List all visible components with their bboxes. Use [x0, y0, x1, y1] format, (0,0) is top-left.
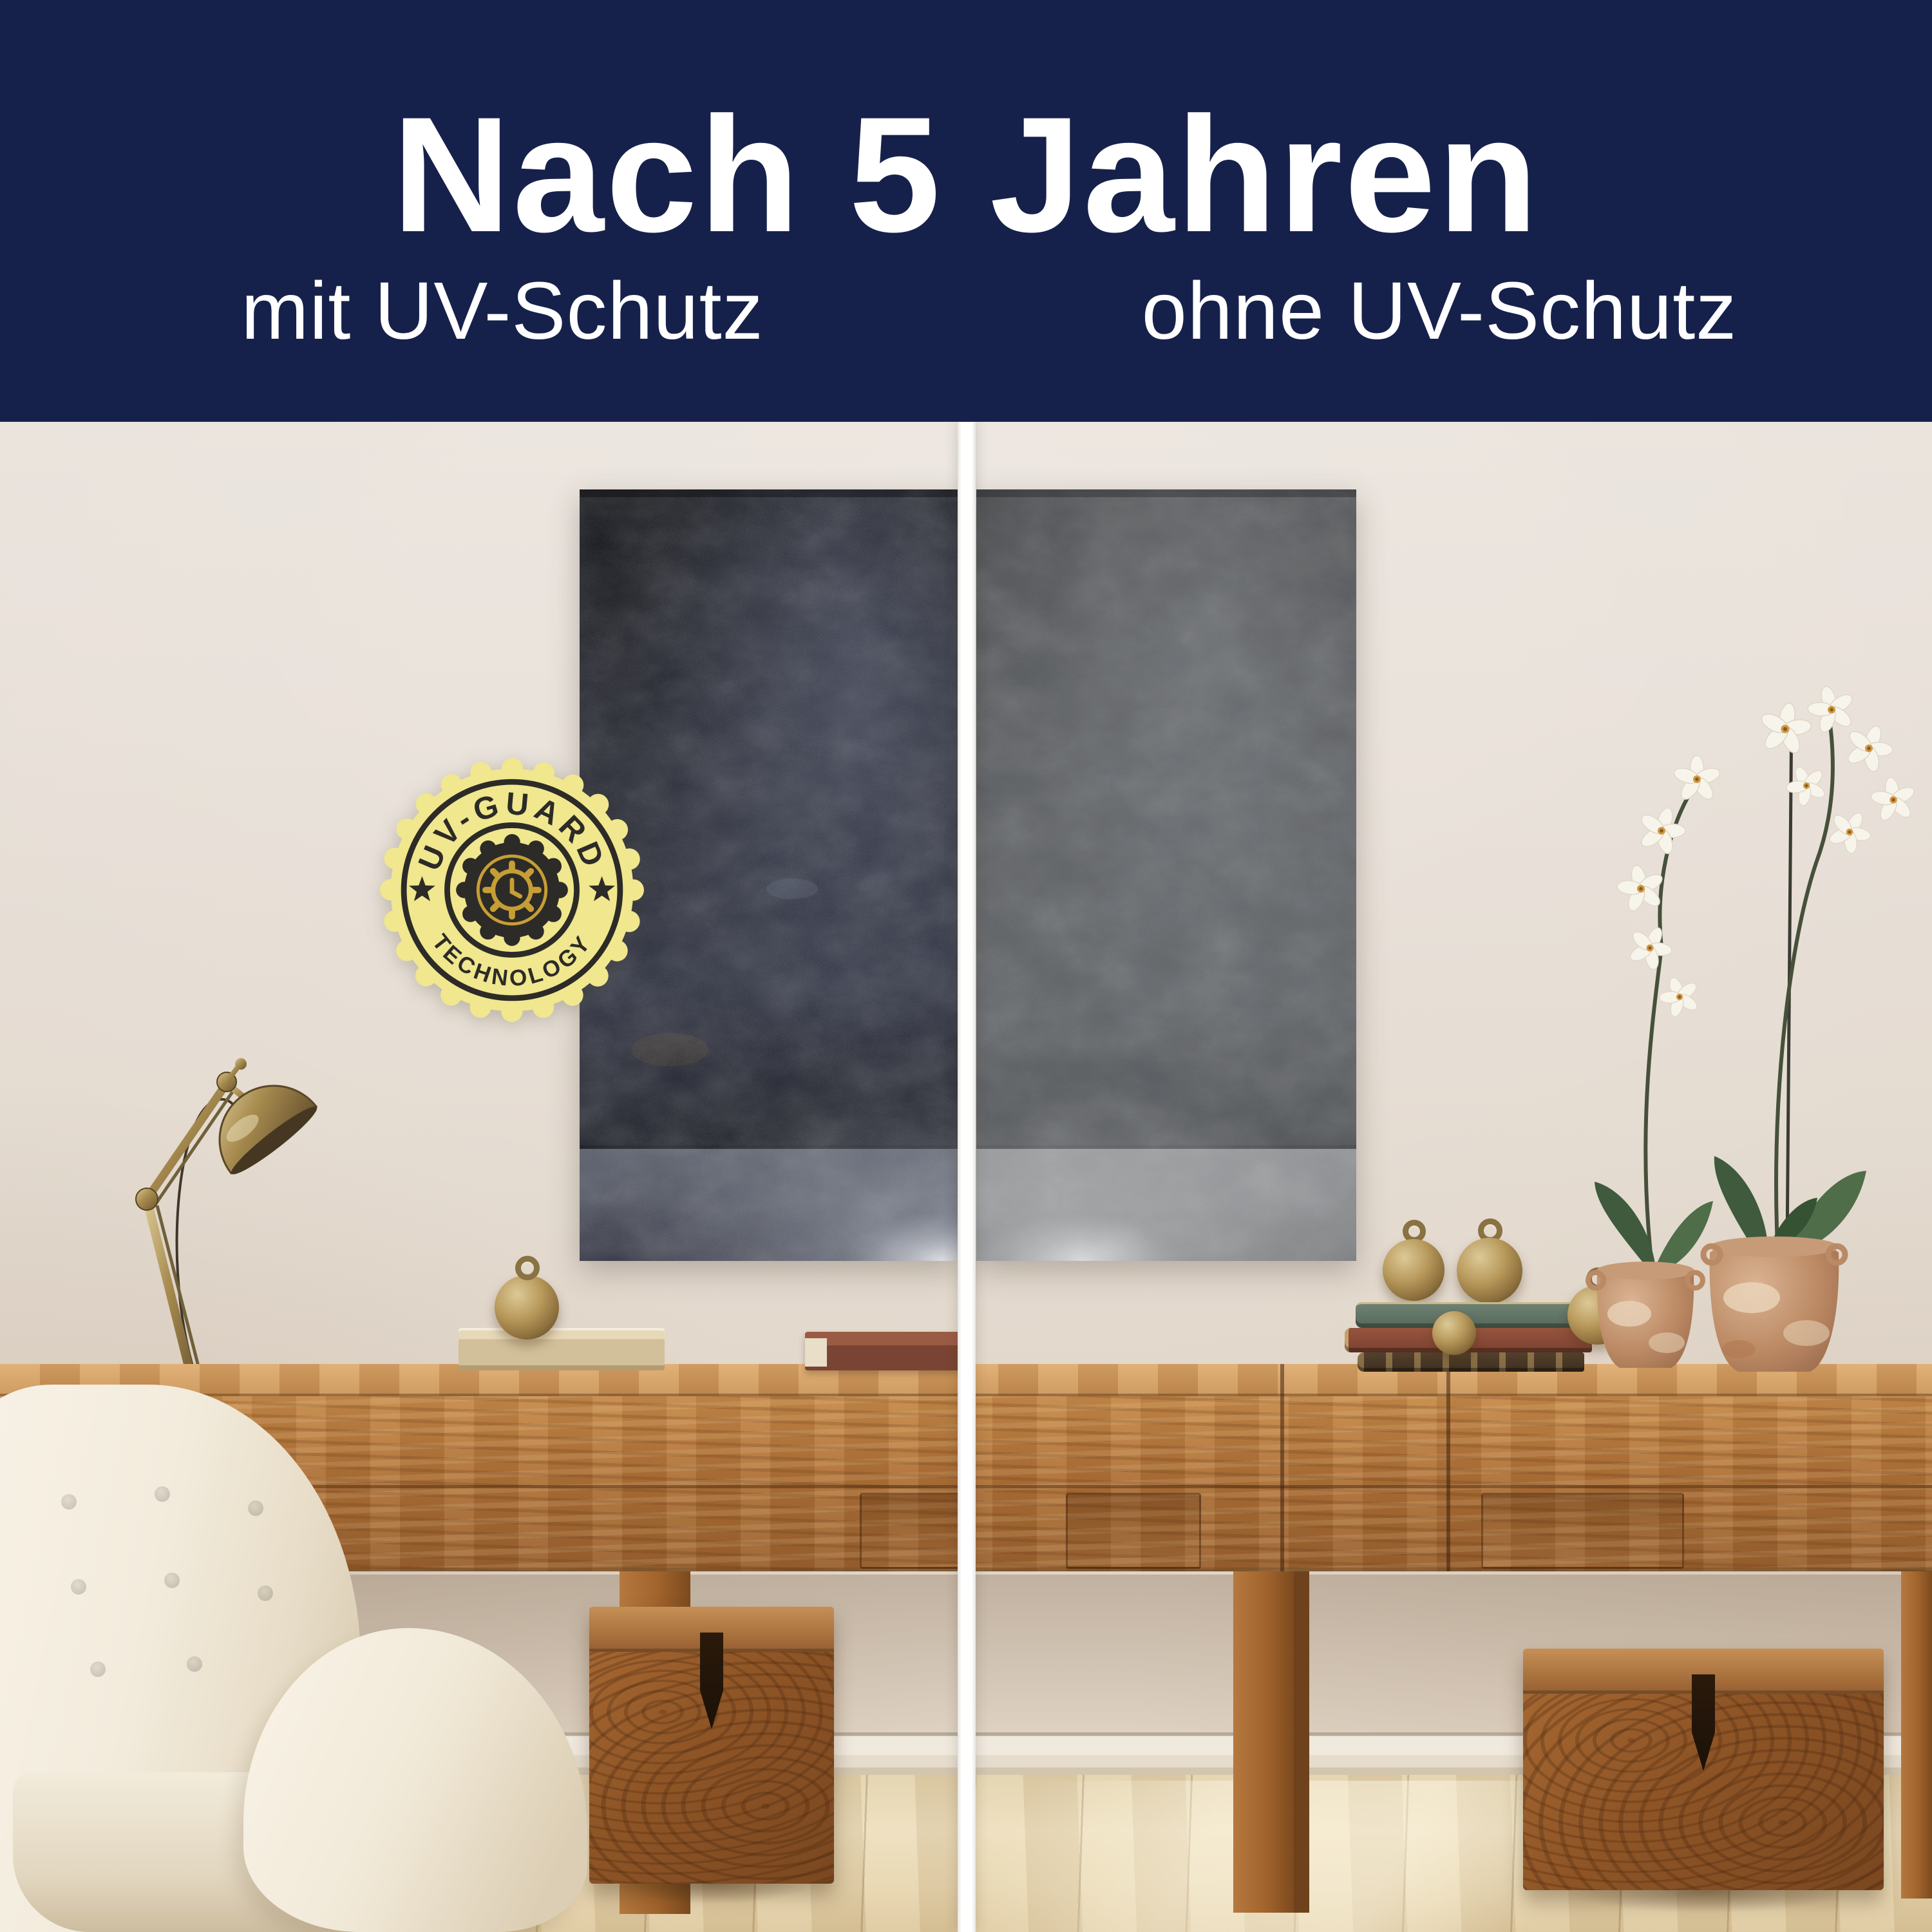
headline: Nach 5 Jahren	[0, 79, 1932, 272]
tuft-button	[258, 1586, 273, 1601]
wooden-chest-left	[589, 1607, 834, 1884]
pot-patch	[1783, 1320, 1830, 1346]
pot-rim	[1710, 1236, 1839, 1257]
orchid-stem	[1645, 782, 1697, 1265]
book-pages-edge	[805, 1338, 827, 1367]
poster-fade-overlay	[976, 489, 1356, 1261]
wooden-tray	[459, 1328, 665, 1370]
pot-handle	[1588, 1273, 1604, 1288]
table-drawer-notch	[1066, 1493, 1201, 1569]
poster-top-shadow	[580, 489, 960, 497]
tuft-button	[71, 1579, 86, 1595]
orchid-flower	[1779, 759, 1833, 813]
orchid-flower	[1620, 918, 1680, 977]
lamp-shade-group	[198, 1064, 322, 1180]
tuft-button	[187, 1656, 202, 1672]
table-drawer-notch	[1481, 1493, 1684, 1569]
lamp-finial	[235, 1058, 247, 1070]
orchid-flower	[1653, 971, 1707, 1023]
brass-ball-ornament	[1457, 1238, 1522, 1303]
tuft-button	[90, 1662, 106, 1677]
table-leg	[1233, 1571, 1309, 1913]
chest-leather-strap	[700, 1633, 723, 1729]
pot-rim	[1596, 1262, 1694, 1280]
orchid-flower	[1672, 755, 1722, 802]
lamp-upper-arm	[147, 1083, 227, 1199]
label-without-uv-protection: ohne UV-Schutz	[1008, 256, 1871, 366]
pot-patch	[1722, 1340, 1756, 1358]
label-with-uv-protection: mit UV-Schutz	[77, 256, 927, 366]
product-comparison-image: UV-GUARD TECHNOLOGY Nach 5 Jahren mit UV…	[0, 0, 1932, 1932]
orchid-flower	[1867, 774, 1920, 825]
orchid-leaf	[1714, 1156, 1768, 1246]
pot-handle	[1687, 1273, 1703, 1288]
brass-ball-ornament-small	[1432, 1311, 1476, 1355]
orchid-pots-group	[1558, 670, 1932, 1385]
uv-guard-badge: UV-GUARD TECHNOLOGY	[380, 758, 644, 1022]
table-unit-seam	[1280, 1364, 1284, 1571]
tuft-button	[61, 1494, 77, 1510]
lamp-elbow-joint	[136, 1188, 158, 1210]
stacked-book-ornate	[1358, 1352, 1584, 1372]
tuft-button	[155, 1486, 170, 1502]
table-drawer-notch	[860, 1493, 963, 1569]
header-band: Nach 5 Jahren mit UV-Schutz ohne UV-Schu…	[0, 0, 1932, 422]
book-lying-flat	[805, 1332, 969, 1370]
brass-ball-ornament	[1383, 1239, 1444, 1301]
wooden-chest-right	[1523, 1649, 1884, 1890]
comparison-divider	[958, 420, 976, 1932]
poster-top-shadow	[976, 489, 1356, 497]
table-leg	[1901, 1571, 1932, 1899]
pot-patch	[1607, 1301, 1651, 1327]
tuft-button	[164, 1573, 180, 1588]
brass-ball-ring-handle	[515, 1256, 540, 1280]
brass-ball-ornament	[495, 1275, 559, 1340]
orchid-flower	[1754, 699, 1816, 759]
chest-leather-strap	[1692, 1674, 1715, 1771]
table-unit-seam	[1446, 1364, 1450, 1571]
pot-patch	[1649, 1332, 1685, 1353]
pot-patch	[1723, 1282, 1780, 1313]
poster-without-uv-protection	[976, 489, 1356, 1261]
tuft-button	[248, 1501, 263, 1516]
